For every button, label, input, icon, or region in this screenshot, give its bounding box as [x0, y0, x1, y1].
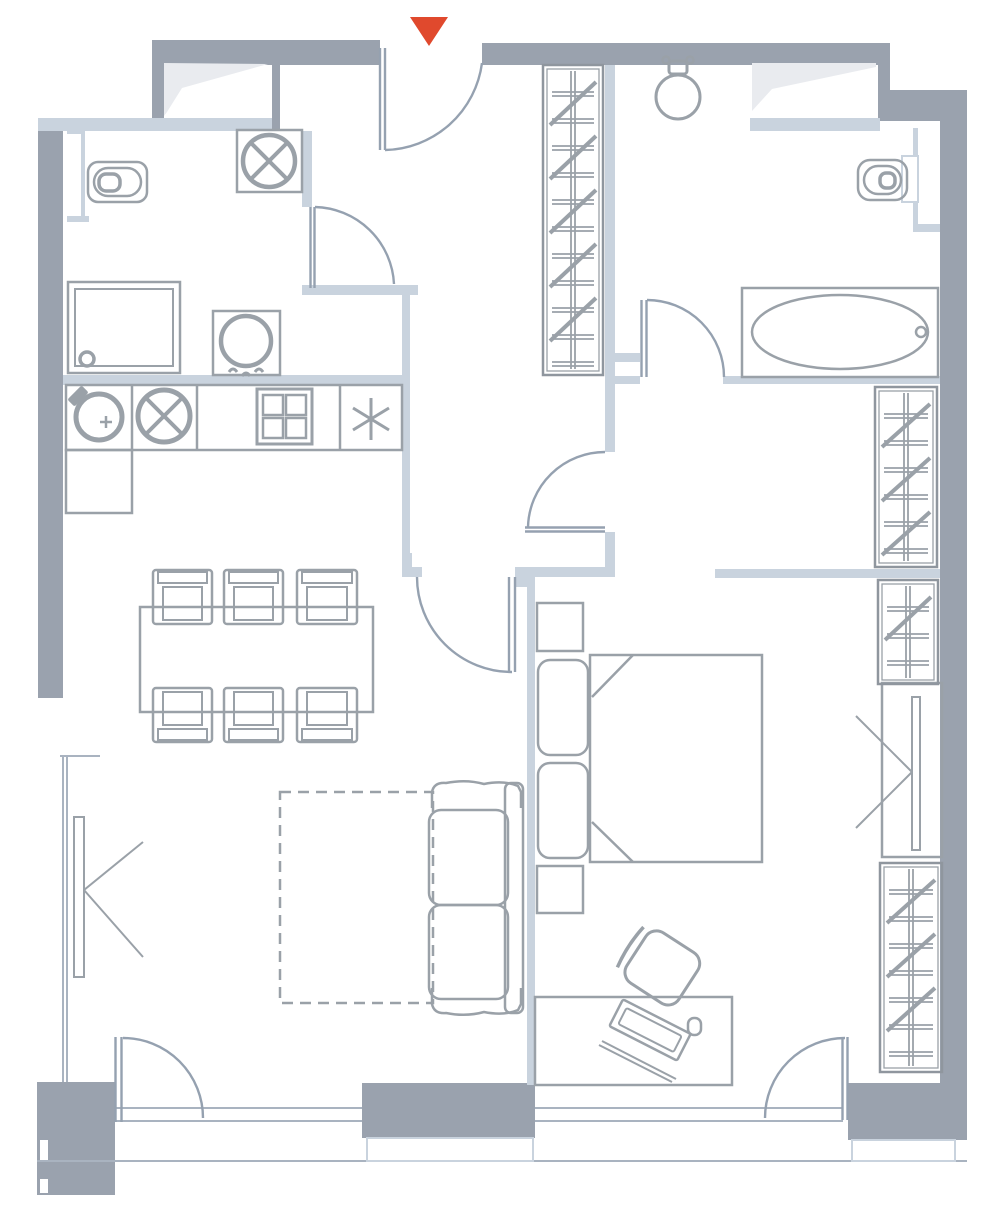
interior-walls	[38, 65, 940, 1085]
kitchen-counter	[66, 385, 402, 450]
stove-icon	[257, 389, 312, 444]
rug	[280, 792, 433, 1003]
window-sill-outline	[37, 1138, 967, 1161]
washing-machine-icon	[213, 311, 280, 376]
nightstand	[537, 866, 583, 913]
dining-chair	[297, 570, 357, 624]
door-arc	[315, 207, 394, 284]
bathroom1-fixtures	[68, 130, 302, 376]
tv-icon	[856, 683, 942, 857]
washbasin-icon	[237, 130, 302, 192]
pedestal-sink-icon	[656, 57, 700, 120]
dining-chair	[224, 688, 283, 742]
closet-mid-right	[878, 580, 938, 684]
bathroom2-door	[642, 300, 725, 377]
door-arc	[417, 577, 512, 672]
entrance-door	[380, 48, 482, 150]
dining-chair	[153, 688, 212, 742]
pillow	[538, 660, 588, 755]
kitchen-counter-return	[66, 450, 132, 513]
corridor-door	[525, 452, 605, 532]
closet-lower-right	[880, 863, 942, 1072]
window-top-right	[752, 63, 876, 111]
balcony-door-left	[116, 1037, 204, 1122]
pillow	[538, 763, 588, 858]
window-bottom-left	[115, 1108, 362, 1121]
dining-chair	[153, 570, 212, 624]
bed-icon	[538, 655, 762, 862]
kettle-icon	[67, 385, 122, 440]
kitchen	[66, 385, 402, 513]
door-arc	[647, 300, 724, 377]
living-room	[74, 781, 523, 1015]
nightstand	[537, 603, 583, 651]
mouse-icon	[688, 1018, 701, 1035]
snowflake-icon	[353, 398, 389, 440]
toilet-icon	[88, 162, 147, 202]
window-bottom-middle	[535, 1108, 843, 1121]
door-arc	[385, 63, 482, 150]
bathtub-icon	[742, 288, 938, 377]
bathroom1-door	[311, 207, 395, 288]
entrance-arrow-icon	[410, 17, 448, 46]
closet-upper-right	[875, 387, 937, 567]
window-left	[60, 756, 100, 1082]
desk	[535, 997, 732, 1085]
door-arc	[528, 452, 605, 527]
tv-icon	[74, 817, 143, 977]
dining-set	[140, 570, 373, 742]
door-arc	[765, 1038, 845, 1118]
sofa-icon	[429, 781, 523, 1015]
exterior-walls	[37, 40, 967, 1195]
dining-chair	[224, 570, 283, 624]
floor-plan-drawing	[0, 0, 1000, 1231]
floor-plan	[0, 0, 1000, 1231]
dining-chair	[297, 688, 357, 742]
window-top-left	[164, 63, 268, 116]
wardrobe-hall	[543, 65, 603, 375]
sink-icon	[138, 390, 190, 442]
toilet-icon	[858, 156, 918, 202]
living-room-door	[417, 577, 515, 672]
door-arc	[123, 1038, 203, 1118]
shower-icon	[68, 282, 180, 373]
